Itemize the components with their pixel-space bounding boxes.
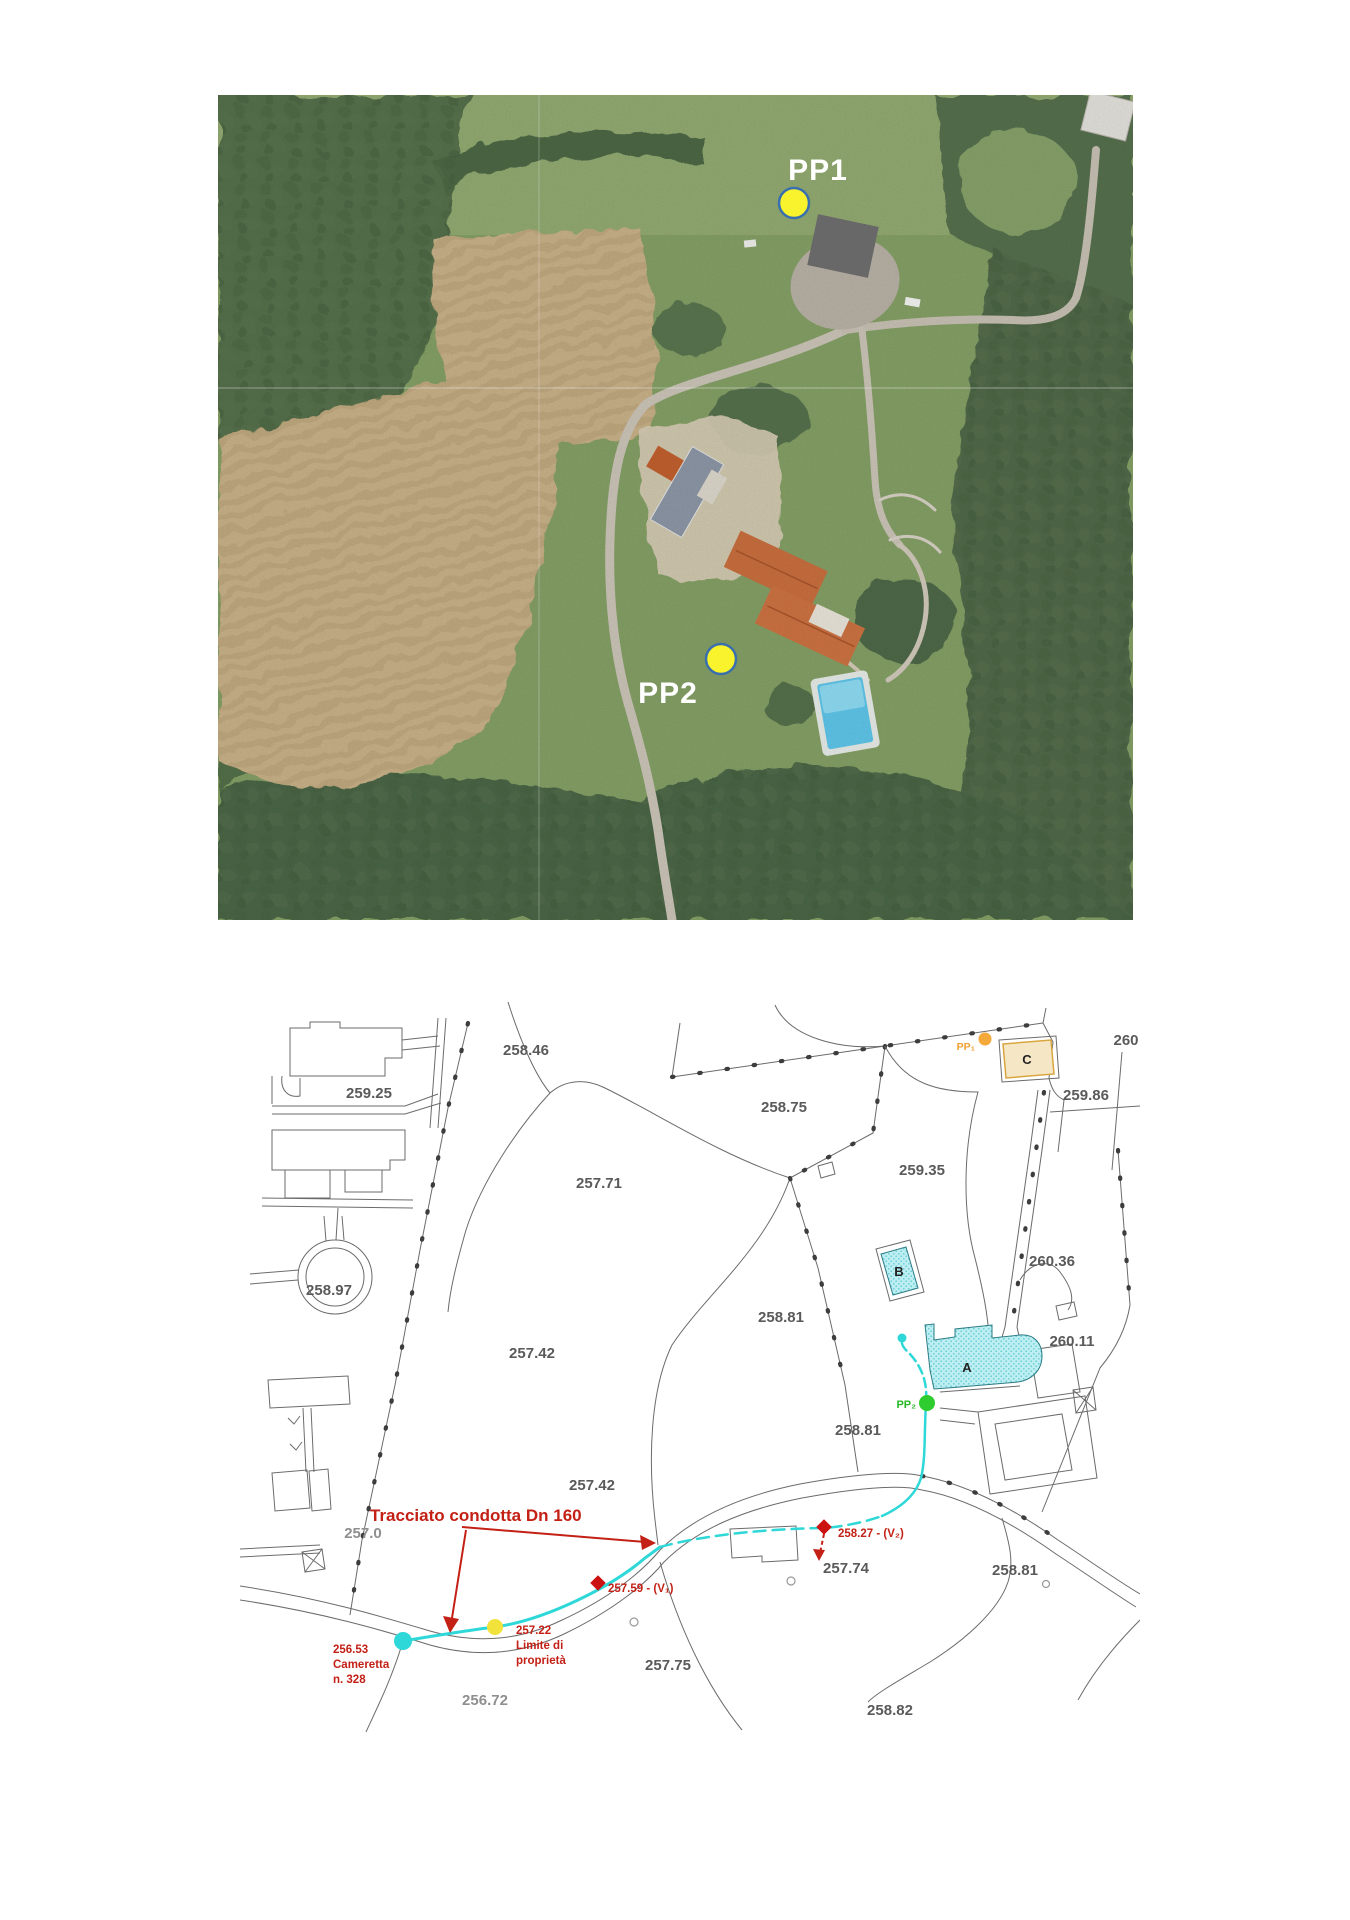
pp2-plan-dot bbox=[919, 1395, 935, 1411]
cameretta-label-l2: Cameretta bbox=[333, 1659, 390, 1671]
valve-v1-label: 257.59 - (V₁) bbox=[608, 1583, 674, 1595]
limite-label-l2: Limite di bbox=[516, 1640, 563, 1652]
elevation-label: 258.81 bbox=[992, 1562, 1038, 1579]
aerial-photo: PP1 PP2 bbox=[218, 95, 1133, 920]
site-plan-map: 258.46 259.25 258.75 257.71 259.35 258.9… bbox=[240, 990, 1140, 1740]
elevation-label: 259.35 bbox=[899, 1162, 945, 1179]
valve-v2-label: 258.27 - (V₂) bbox=[838, 1528, 904, 1540]
pp1-plan-dot bbox=[979, 1033, 992, 1046]
pp2-marker-dot bbox=[706, 644, 736, 674]
building-b-label: B bbox=[894, 1264, 903, 1279]
pipeline-end-dot bbox=[898, 1334, 907, 1343]
elevation-label: 256.72 bbox=[462, 1692, 508, 1709]
property-limit-dot bbox=[487, 1619, 503, 1635]
elevation-label: 260.36 bbox=[1029, 1253, 1075, 1270]
limite-label-l3: proprietà bbox=[516, 1655, 566, 1667]
elevation-label: 260.11 bbox=[1049, 1333, 1094, 1350]
elevation-label: 258.75 bbox=[761, 1099, 807, 1116]
elevation-label: 258.97 bbox=[306, 1282, 352, 1299]
elevation-label: 258.46 bbox=[503, 1042, 549, 1059]
cameretta-label-l3: n. 328 bbox=[333, 1674, 366, 1686]
elevation-label: 258.81 bbox=[758, 1309, 804, 1326]
building-c-label: C bbox=[1022, 1052, 1032, 1067]
elevation-label: 257.42 bbox=[509, 1345, 555, 1362]
building-a-label: A bbox=[962, 1360, 972, 1375]
elevation-label: 259.25 bbox=[346, 1085, 392, 1102]
elevation-label: 257.75 bbox=[645, 1657, 691, 1674]
elevation-label: 257.71 bbox=[576, 1175, 622, 1192]
elevation-label: 260 bbox=[1113, 1032, 1138, 1049]
pp1-plan-label: PP₁ bbox=[957, 1041, 975, 1053]
pp1-marker-dot bbox=[779, 188, 809, 218]
elevation-label: 257.0 bbox=[344, 1525, 382, 1542]
chamber-dot bbox=[394, 1632, 412, 1650]
elevation-label: 259.86 bbox=[1063, 1087, 1109, 1104]
tracciato-label: Tracciato condotta Dn 160 bbox=[370, 1506, 582, 1525]
document-page: PP1 PP2 bbox=[0, 0, 1350, 1920]
photo-grain bbox=[218, 95, 1133, 920]
pp1-photo-label: PP1 bbox=[788, 154, 848, 187]
elevation-label: 257.74 bbox=[823, 1560, 870, 1577]
pp2-photo-label: PP2 bbox=[638, 677, 698, 710]
elevation-label: 258.82 bbox=[867, 1702, 913, 1719]
cameretta-label-l1: 256.53 bbox=[333, 1644, 368, 1656]
elevation-label: 257.42 bbox=[569, 1477, 615, 1494]
pp2-plan-label: PP₂ bbox=[896, 1399, 916, 1411]
elevation-label: 258.81 bbox=[835, 1422, 881, 1439]
limite-label-l1: 257.22 bbox=[516, 1625, 551, 1637]
